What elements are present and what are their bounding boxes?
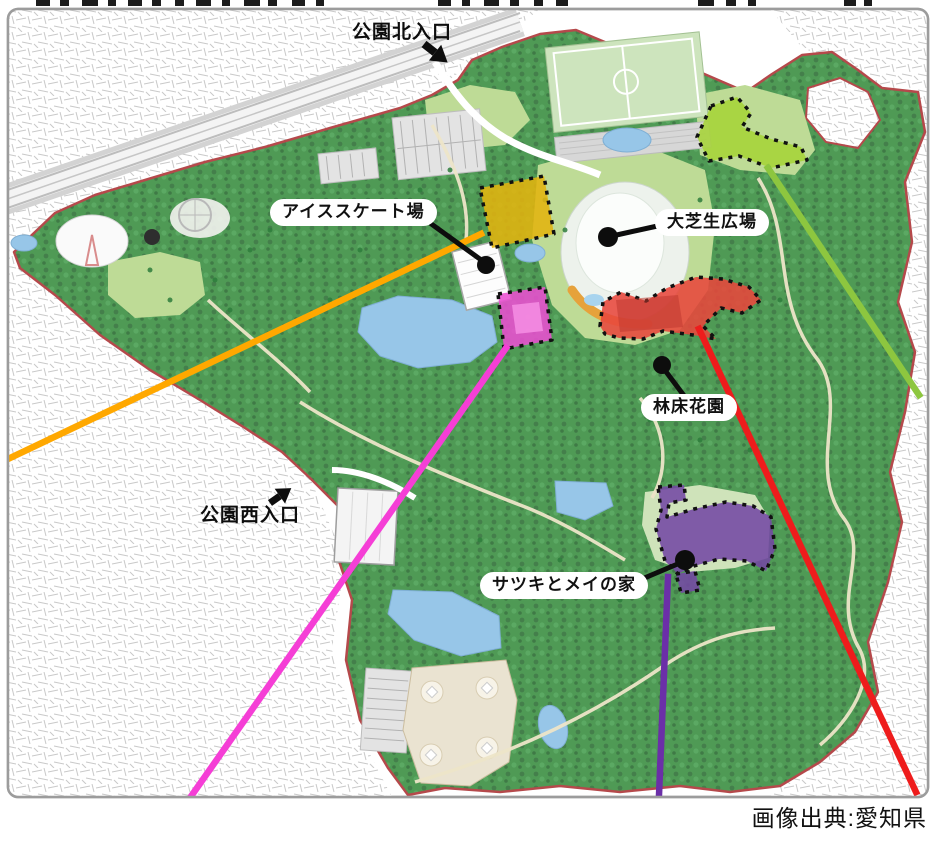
forest-garden-dot [653,356,671,374]
parking-lot-north-small [318,148,379,184]
forest-floor-garden-label: 林床花園 [641,394,737,421]
zone-red-inner [616,295,683,332]
satsuki-mei-house-label: サツキとメイの家 [480,572,648,599]
lawn-plaza-label: 大芝生広場 [655,209,769,236]
satsuki-dot [675,550,695,570]
west-entrance-label: 公園西入口 [200,500,300,527]
park-map-illustration [0,0,937,842]
north-entrance-label: 公園北入口 [352,17,452,44]
ice-rink-label: アイススケート場 [270,199,437,226]
screenshot-stage: 公園北入口 公園西入口 アイススケート場 大芝生広場 林床花園 サツキとメイの家… [0,0,937,842]
lawn-plaza-dot [598,227,618,247]
image-source-caption: 画像出典:愛知県 [752,799,927,833]
parking-lot-north [392,109,486,180]
ice-rink-dot [477,256,495,274]
gymnasium-building [334,488,398,565]
zone-magenta-inner [512,302,543,334]
zone-satsuki-mei-tab [676,571,700,593]
parking-lot-south [360,668,412,753]
